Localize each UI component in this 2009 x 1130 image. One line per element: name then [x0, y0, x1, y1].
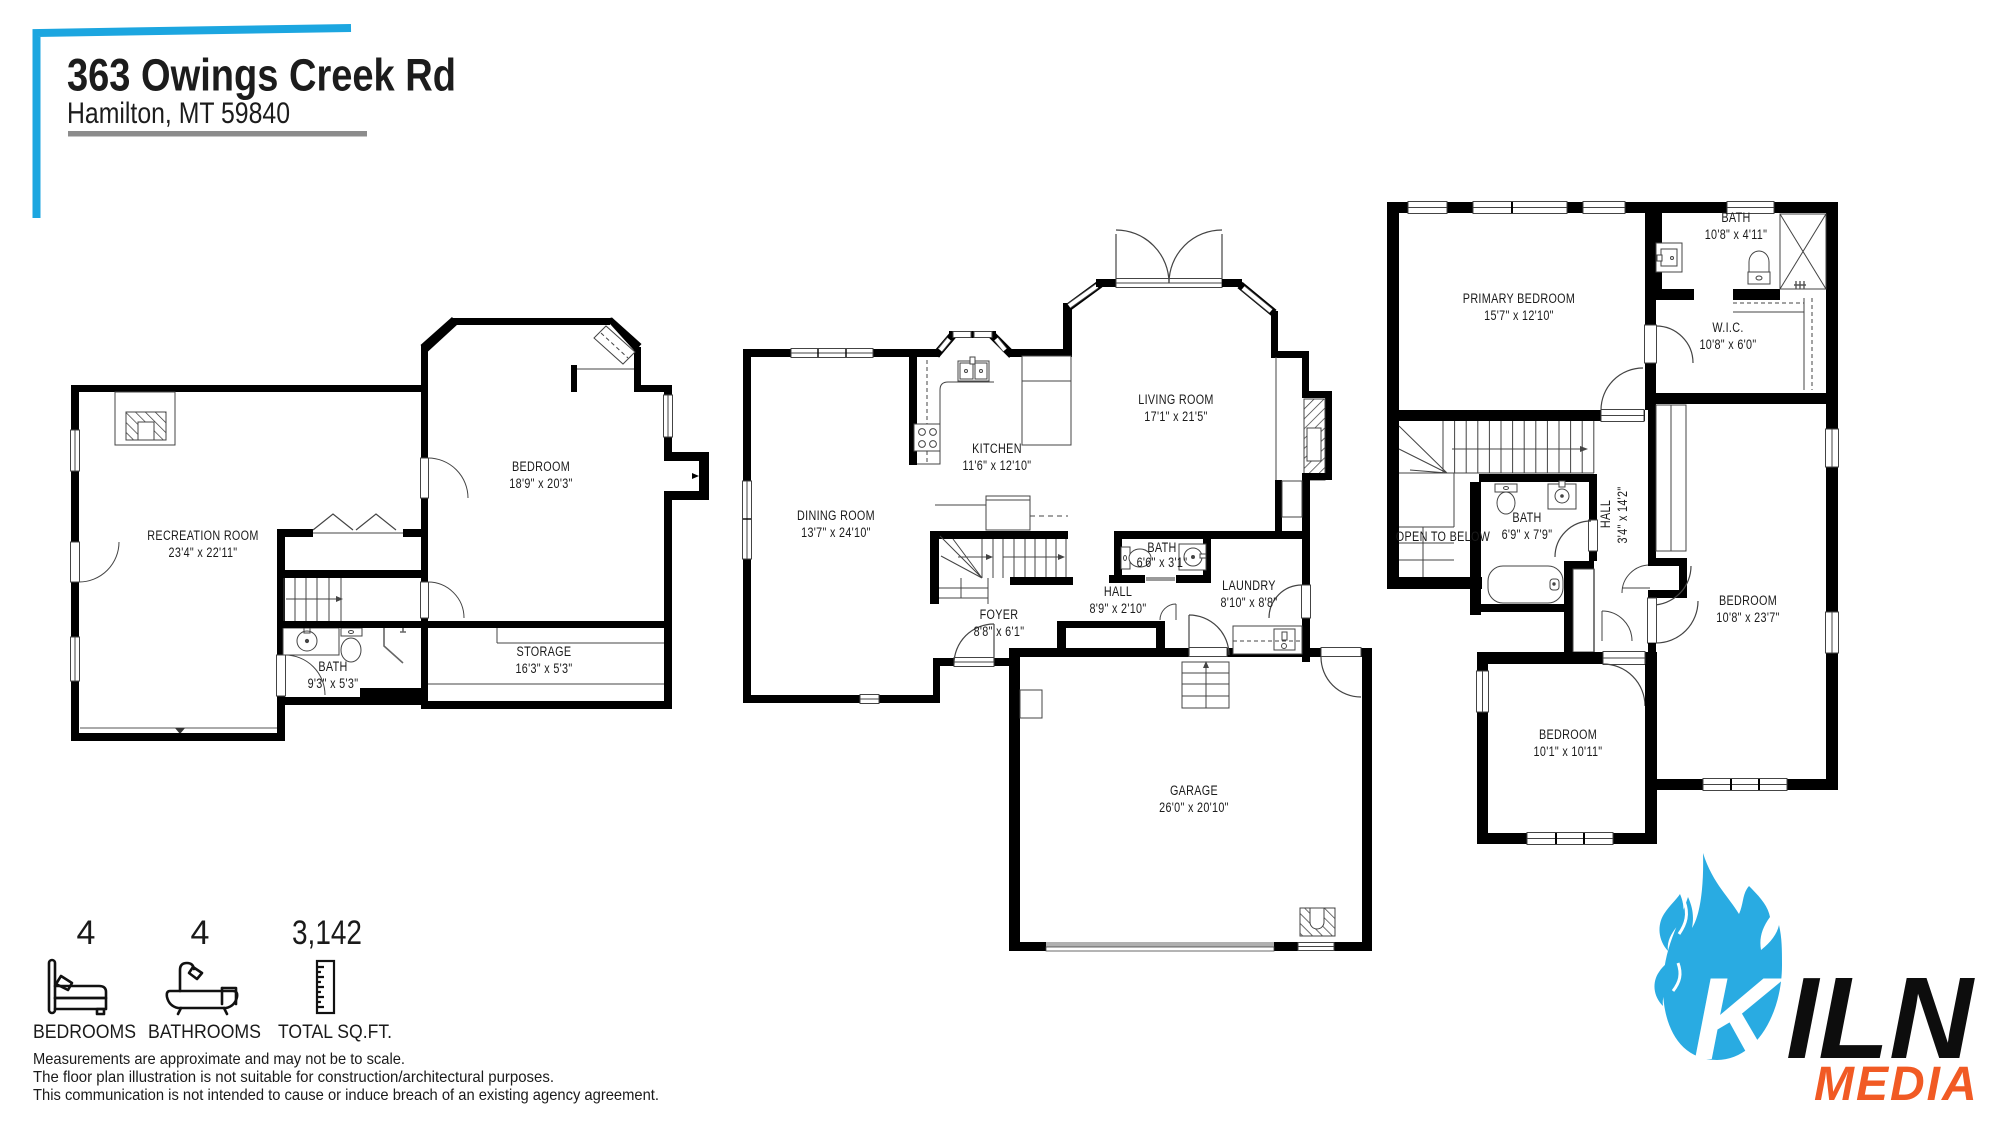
svg-text:BATH: BATH [1147, 540, 1176, 555]
svg-text:BATHROOMS: BATHROOMS [148, 1022, 261, 1043]
svg-text:18'9" x 20'3": 18'9" x 20'3" [509, 476, 572, 491]
svg-text:16'3" x 5'3": 16'3" x 5'3" [515, 661, 572, 676]
svg-text:3'4" x 14'2": 3'4" x 14'2" [1615, 486, 1630, 543]
svg-text:LIVING ROOM: LIVING ROOM [1138, 392, 1214, 407]
svg-text:10'8" x 6'0": 10'8" x 6'0" [1699, 337, 1756, 352]
svg-text:HALL: HALL [1104, 584, 1132, 599]
svg-text:8'8" x 6'1": 8'8" x 6'1" [974, 624, 1025, 639]
svg-text:4: 4 [77, 914, 96, 952]
svg-text:PRIMARY BEDROOM: PRIMARY BEDROOM [1463, 291, 1575, 306]
svg-text:TOTAL SQ.FT.: TOTAL SQ.FT. [278, 1022, 392, 1043]
svg-text:23'4" x 22'11": 23'4" x 22'11" [169, 545, 238, 560]
svg-text:LAUNDRY: LAUNDRY [1222, 578, 1276, 593]
svg-text:10'8" x 23'7": 10'8" x 23'7" [1716, 610, 1779, 625]
svg-text:9'3" x 5'3": 9'3" x 5'3" [308, 676, 359, 691]
svg-text:BEDROOM: BEDROOM [512, 459, 570, 474]
svg-text:HALL: HALL [1598, 500, 1613, 528]
svg-text:363 Owings Creek Rd: 363 Owings Creek Rd [67, 50, 456, 101]
svg-text:3,142: 3,142 [292, 914, 362, 952]
svg-text:GARAGE: GARAGE [1170, 783, 1218, 798]
svg-text:15'7" x 12'10": 15'7" x 12'10" [1484, 308, 1554, 323]
svg-text:BATH: BATH [318, 659, 347, 674]
svg-text:BATH: BATH [1512, 510, 1541, 525]
svg-text:MEDIA: MEDIA [1814, 1058, 1979, 1111]
svg-text:FOYER: FOYER [980, 607, 1019, 622]
svg-text:26'0" x 20'10": 26'0" x 20'10" [1159, 800, 1229, 815]
svg-text:KITCHEN: KITCHEN [972, 441, 1022, 456]
svg-text:8'10" x 8'8": 8'10" x 8'8" [1220, 595, 1277, 610]
svg-text:6'6" x 3'1": 6'6" x 3'1" [1137, 555, 1188, 570]
svg-text:K: K [1693, 953, 1785, 1084]
svg-text:RECREATION ROOM: RECREATION ROOM [147, 528, 258, 543]
svg-text:DINING ROOM: DINING ROOM [797, 508, 875, 523]
svg-text:BATH: BATH [1721, 210, 1750, 225]
svg-text:Hamilton, MT 59840: Hamilton, MT 59840 [67, 97, 290, 130]
svg-text:BEDROOM: BEDROOM [1539, 727, 1597, 742]
svg-text:OPEN TO BELOW: OPEN TO BELOW [1396, 529, 1490, 544]
svg-text:BEDROOMS: BEDROOMS [33, 1022, 136, 1043]
svg-text:BEDROOM: BEDROOM [1719, 593, 1777, 608]
svg-text:This communication is not inte: This communication is not intended to ca… [33, 1087, 659, 1104]
svg-text:6'9" x 7'9": 6'9" x 7'9" [1502, 527, 1553, 542]
svg-text:4: 4 [191, 914, 210, 952]
svg-text:17'1" x 21'5": 17'1" x 21'5" [1144, 409, 1207, 424]
svg-text:Measurements are approximate a: Measurements are approximate and may not… [33, 1051, 405, 1068]
svg-text:13'7" x 24'10": 13'7" x 24'10" [801, 525, 871, 540]
svg-text:The floor plan illustration is: The floor plan illustration is not suita… [33, 1069, 554, 1086]
svg-text:10'8" x 4'11": 10'8" x 4'11" [1705, 227, 1768, 242]
svg-text:8'9" x 2'10": 8'9" x 2'10" [1089, 601, 1146, 616]
svg-text:STORAGE: STORAGE [517, 644, 572, 659]
svg-text:10'1" x 10'11": 10'1" x 10'11" [1534, 744, 1603, 759]
svg-text:11'6" x 12'10": 11'6" x 12'10" [963, 458, 1032, 473]
svg-text:W.I.C.: W.I.C. [1712, 320, 1743, 335]
